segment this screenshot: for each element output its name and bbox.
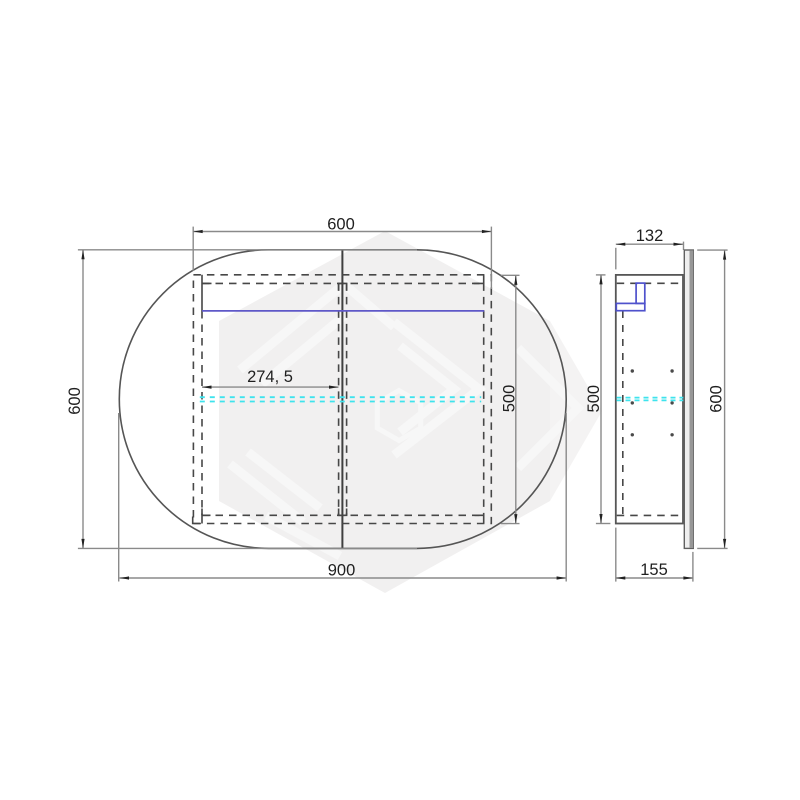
svg-text:900: 900 (328, 561, 356, 579)
svg-text:600: 600 (708, 385, 726, 413)
svg-text:500: 500 (585, 385, 603, 413)
svg-text:600: 600 (66, 387, 84, 415)
svg-text:274, 5: 274, 5 (247, 368, 293, 386)
svg-text:132: 132 (636, 227, 664, 245)
svg-text:500: 500 (501, 385, 519, 413)
svg-text:155: 155 (640, 561, 668, 579)
svg-text:600: 600 (327, 216, 355, 234)
